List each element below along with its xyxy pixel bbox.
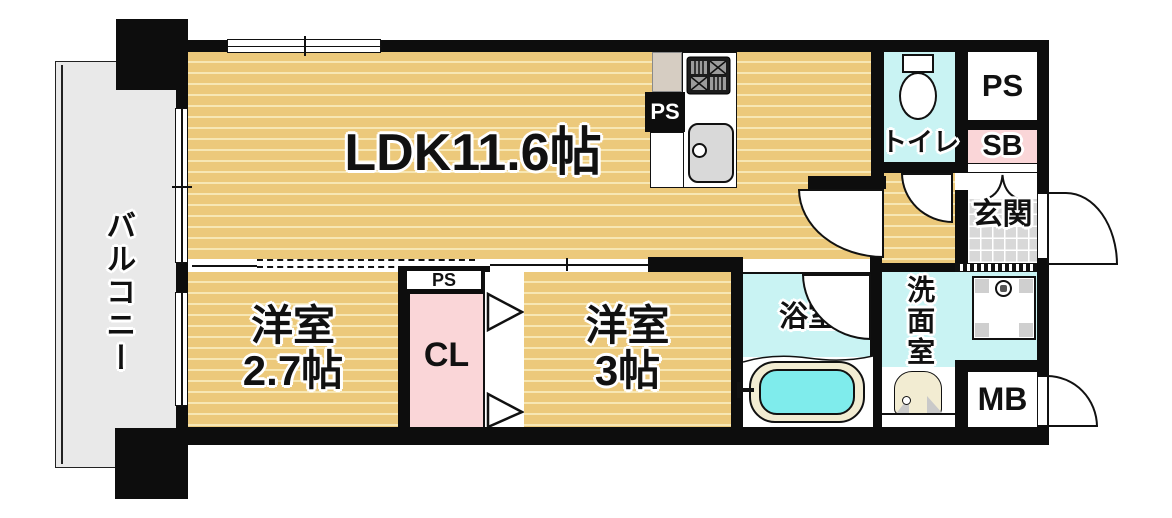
wall-mb-top — [968, 360, 1037, 372]
kitchen-counter-ext — [650, 132, 684, 188]
sb-genkan-gap — [968, 163, 1037, 173]
genkan-step-hatch — [955, 263, 1037, 272]
balcony-rail-line — [61, 65, 63, 464]
mb-door-arc — [1047, 375, 1098, 427]
floor-plan: バルコニー PS SB 玄関 トイレ — [0, 0, 1172, 518]
window-top-tick — [304, 36, 306, 56]
room3-size: 3帖 — [595, 348, 660, 393]
meter-box-room: MB — [968, 372, 1037, 427]
washroom-label: 洗面室 — [899, 266, 939, 376]
room27-name: 洋室 — [251, 303, 335, 348]
shoe-box-room: SB — [968, 130, 1037, 163]
window-top — [227, 39, 381, 53]
stove-icon — [686, 56, 731, 95]
bathtub-faucet-spout — [741, 388, 754, 392]
washing-machine-tap-dot — [1000, 285, 1007, 292]
closet-ps-labelbox: PS — [407, 271, 481, 289]
bathtub-water — [759, 369, 855, 415]
room27-size: 2.7帖 — [243, 348, 343, 393]
pipe-space-label: PS — [982, 70, 1023, 103]
washing-machine-corner-br — [1019, 323, 1033, 337]
wall-ps-sb — [968, 120, 1037, 130]
washing-machine-corner-tr — [1019, 279, 1033, 293]
toilet-label: トイレ — [878, 126, 962, 158]
sliding-door-tick — [566, 258, 568, 271]
wall-bathroom-top — [648, 257, 743, 272]
genkan-label-text: 玄関 — [973, 199, 1033, 231]
genkan-label: 玄関 — [968, 197, 1037, 233]
closet-ps-label: PS — [432, 271, 456, 290]
closet-label: CL — [410, 334, 483, 378]
entrance-door-arc — [1047, 192, 1118, 265]
toilet-bowl-icon — [899, 72, 937, 120]
wall-toilet-bottom — [880, 162, 968, 173]
room3-name: 洋室 — [585, 303, 669, 348]
kitchen-ps-box: PS — [645, 92, 685, 132]
window-left-upper — [175, 108, 188, 263]
meter-box-label: MB — [978, 383, 1028, 417]
wall-hall-genkan — [955, 190, 968, 263]
sliding-door-ldk-room3-track — [490, 264, 648, 266]
opening-line-left — [192, 265, 257, 267]
genkan-arch-icon — [984, 173, 1021, 200]
balcony-label: バルコニー — [96, 196, 138, 388]
window-left-upper-tick — [172, 186, 192, 188]
wall-room3-bathroom — [731, 272, 743, 427]
wall-bottom — [176, 427, 1049, 445]
closet-folding-door-icon — [483, 272, 524, 427]
washing-machine-corner-bl — [975, 323, 989, 337]
toilet-tank-icon — [902, 54, 934, 73]
wall-corridor-stub — [808, 176, 886, 189]
wall-washroom-mb-left — [955, 360, 968, 427]
kitchen-fridge-space — [652, 52, 682, 92]
washbasin-drain — [902, 396, 911, 405]
sink-faucet-icon — [692, 143, 707, 158]
western-room-3-label: 洋室 3帖 — [524, 288, 731, 408]
western-room-2-7-label: 洋室 2.7帖 — [188, 288, 398, 408]
window-left-lower-sash — [181, 293, 183, 407]
washroom-label-text: 洗面室 — [904, 275, 934, 368]
shoe-box-label: SB — [982, 131, 1022, 162]
ldk-label-text: LDK11.6帖 — [344, 125, 601, 181]
toilet-label-text: トイレ — [881, 128, 959, 156]
kitchen-ps-label: PS — [650, 100, 679, 123]
washing-machine-corner-tl — [975, 279, 989, 293]
washbasin-counter-line — [882, 413, 955, 415]
pipe-space-room: PS — [968, 52, 1037, 120]
window-left-lower — [175, 292, 188, 406]
wall-room27-closet — [398, 272, 410, 427]
closet-label-text: CL — [424, 338, 469, 374]
ldk-label: LDK11.6帖 — [248, 118, 698, 188]
